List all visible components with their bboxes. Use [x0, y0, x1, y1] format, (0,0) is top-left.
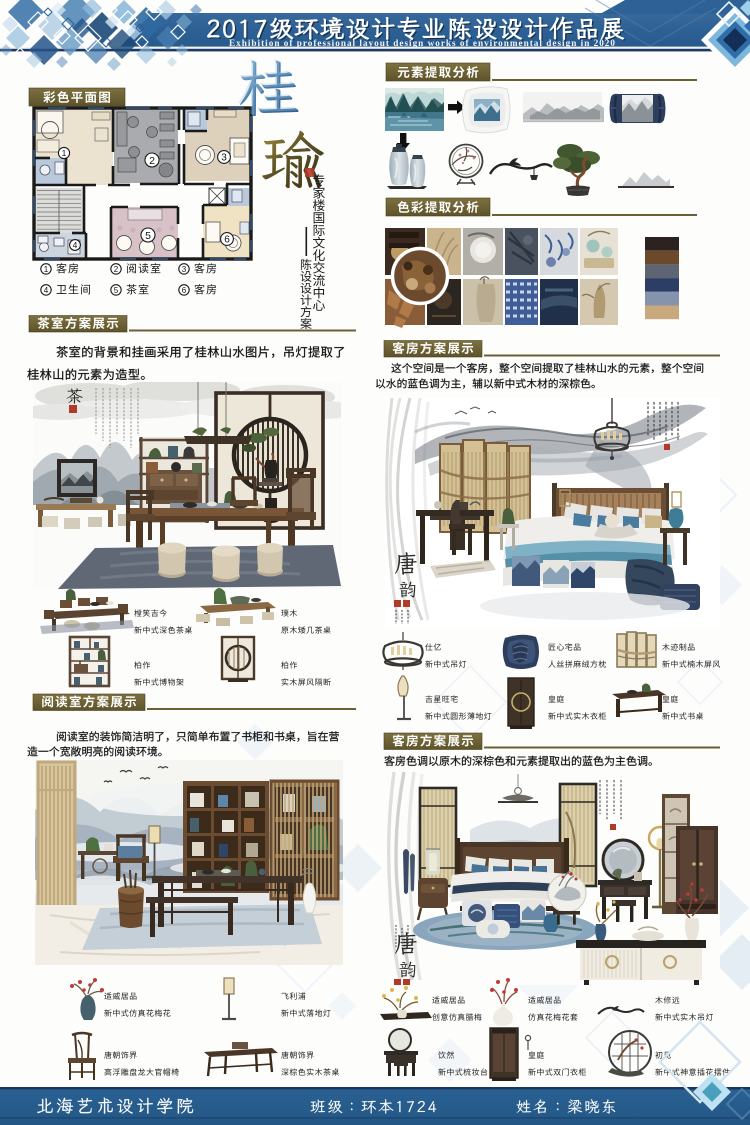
svg-text:6: 6	[182, 286, 187, 295]
svg-text:5: 5	[145, 230, 151, 242]
svg-text:6: 6	[224, 235, 230, 246]
svg-text:2: 2	[114, 265, 119, 274]
svg-text:4: 4	[44, 286, 49, 295]
svg-text:3: 3	[182, 265, 187, 274]
svg-text:5: 5	[114, 286, 119, 295]
svg-text:Exhibition of professional lay: Exhibition of professional layout design…	[229, 38, 615, 48]
svg-text:4: 4	[73, 240, 78, 250]
svg-text:2: 2	[149, 155, 155, 167]
svg-text:1: 1	[44, 265, 49, 274]
svg-text:1: 1	[62, 148, 67, 158]
svg-text:3: 3	[221, 153, 227, 164]
